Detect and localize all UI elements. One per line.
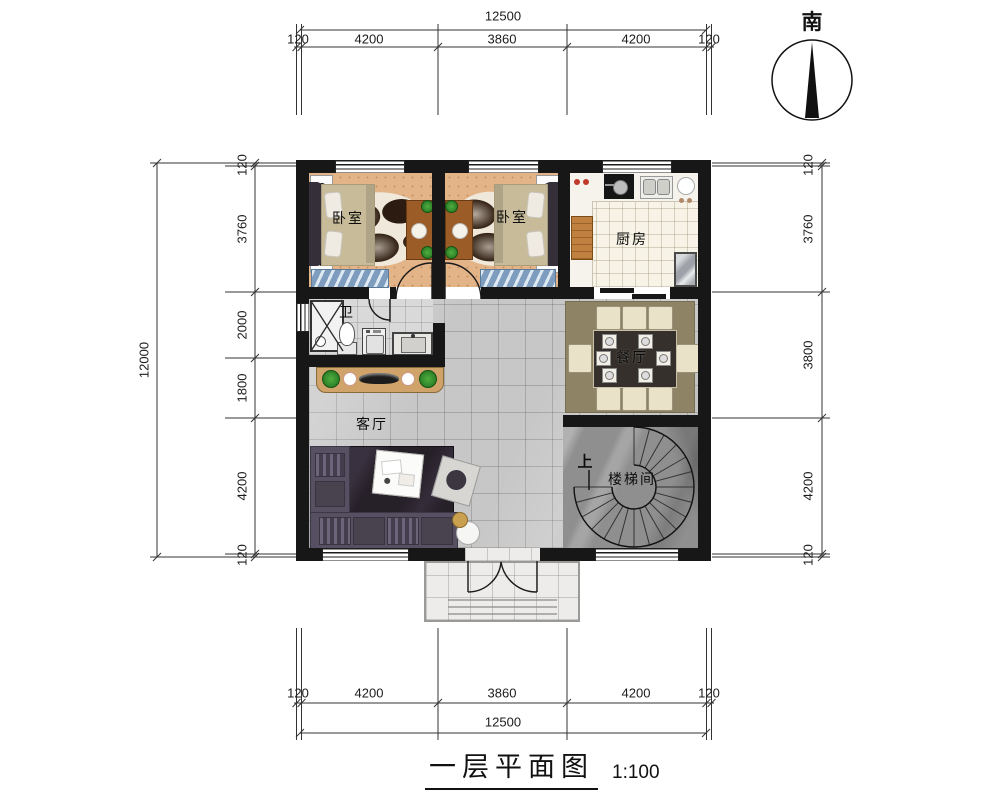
- place-setting-3: [602, 368, 617, 383]
- dim-bottom-seg2: 3860: [488, 686, 517, 701]
- wall-mid-seg2: [390, 287, 396, 299]
- console-plant-right: [419, 370, 437, 388]
- kettle-decor: [452, 512, 468, 528]
- dim-bottom-seg3: 4200: [622, 686, 651, 701]
- drawing-title: 一层平面图: [425, 745, 598, 790]
- kitchen-sink: [640, 176, 673, 199]
- coffee-table: [372, 450, 424, 499]
- kitchen-jar-dot2: [687, 198, 692, 203]
- wall-bath-bottom: [309, 355, 445, 367]
- wall-bath-right-stub: [433, 323, 445, 367]
- place-setting-5: [596, 351, 611, 366]
- dim-top-seg2: 3860: [488, 32, 517, 47]
- bedroom1-bed-headboard: [309, 182, 321, 266]
- console-tv: [359, 373, 399, 384]
- porch-floor: [424, 561, 580, 622]
- window-bedroom2: [468, 160, 539, 173]
- window-living-bottom: [322, 548, 409, 561]
- dim-right-seg0: 120: [801, 154, 816, 176]
- living-label: 客厅: [356, 414, 388, 434]
- dim-right-seg1: 3760: [801, 215, 816, 244]
- bath-label: 卫: [339, 302, 355, 322]
- window-kitchen: [602, 160, 672, 173]
- place-setting-6: [656, 351, 671, 366]
- dim-top-seg0: 120: [287, 32, 309, 47]
- window-stair-bottom: [595, 548, 679, 561]
- bedroom2-plant-top: [445, 200, 458, 213]
- drawing-title-block: 一层平面图 1:100: [425, 745, 660, 790]
- dining-label: 餐厅: [616, 347, 648, 367]
- window-bath-left: [296, 303, 309, 332]
- dim-top-seg3: 4200: [622, 32, 651, 47]
- stair-up-label: 上: [577, 451, 594, 472]
- dim-left-seg3: 1800: [235, 374, 250, 403]
- dining-chair-bottom-1: [596, 387, 621, 411]
- dim-left-seg4: 4200: [235, 472, 250, 501]
- console-bowl-right: [401, 372, 415, 386]
- dim-top-seg4: 120: [698, 32, 720, 47]
- dim-right-seg2: 3800: [801, 341, 816, 370]
- dim-right-seg4: 120: [801, 544, 816, 566]
- place-setting-4: [638, 368, 653, 383]
- bedroom1-mat: [311, 269, 389, 288]
- bath-washer: [362, 328, 386, 355]
- bedroom2-label: 卧室: [496, 207, 528, 227]
- dim-top-seg1: 4200: [355, 32, 384, 47]
- wall-bedrooms-divider: [432, 173, 445, 299]
- kitchen-wood-cabinet: [571, 216, 593, 260]
- dim-bottom-total: 12500: [485, 715, 521, 730]
- dining-chair-top-1: [596, 306, 621, 330]
- wall-dining-stair: [563, 415, 698, 427]
- wall-bedroom2-kitchen: [558, 173, 570, 299]
- dining-chair-right: [676, 344, 700, 373]
- dim-right-seg3: 4200: [801, 472, 816, 501]
- bedroom2-mat: [480, 269, 556, 288]
- entrance-opening: [465, 548, 540, 561]
- kitchen-burner-dot2: [583, 179, 589, 185]
- dim-left-seg5: 120: [235, 544, 250, 566]
- compass: [772, 40, 852, 120]
- dim-bottom-seg1: 4200: [355, 686, 384, 701]
- sofa-bottom-section: [310, 512, 458, 549]
- wall-right: [698, 160, 711, 561]
- bedroom2-plant-bottom: [445, 246, 458, 259]
- kitchen-stove: [604, 174, 634, 199]
- sofa-left-section: [310, 446, 350, 514]
- dim-top-total: 12500: [485, 9, 521, 24]
- stair-label: 楼梯间: [608, 469, 656, 489]
- dining-chair-top-3: [648, 306, 673, 330]
- dining-chair-top-2: [622, 306, 647, 330]
- dim-left-seg2: 2000: [235, 311, 250, 340]
- bath-toilet: [337, 322, 357, 355]
- bedroom1-label: 卧室: [332, 208, 364, 228]
- compass-circle: [772, 40, 852, 120]
- dim-bottom-seg4: 120: [698, 686, 720, 701]
- wall-mid-seg3: [481, 287, 594, 299]
- compass-south-label: 南: [802, 6, 823, 36]
- drawing-scale: 1:100: [612, 762, 660, 790]
- wall-left: [296, 160, 309, 561]
- dining-chair-left: [568, 344, 592, 373]
- dining-chair-bottom-3: [648, 387, 673, 411]
- dining-chair-bottom-2: [622, 387, 647, 411]
- console-bowl-left: [343, 372, 357, 386]
- kitchen-burner-dot1: [574, 179, 580, 185]
- window-bedroom1: [335, 160, 405, 173]
- kitchen-slider-bar1: [600, 288, 634, 293]
- wall-mid-seg1: [309, 287, 369, 299]
- kitchen-basin-round: [677, 177, 695, 195]
- kitchen-fridge: [674, 252, 697, 287]
- console-plant-left: [322, 370, 340, 388]
- wall-mid-seg4: [670, 287, 698, 299]
- bath-vanity: [392, 332, 433, 356]
- dim-left-total: 12000: [137, 342, 152, 378]
- dim-bottom-seg0: 120: [287, 686, 309, 701]
- compass-needle-icon: [805, 42, 819, 118]
- dim-left-seg0: 120: [235, 154, 250, 176]
- place-setting-1: [602, 334, 617, 349]
- kitchen-label: 厨房: [616, 229, 648, 249]
- kitchen-slider-bar2: [632, 294, 666, 299]
- dim-left-seg1: 3760: [235, 215, 250, 244]
- kitchen-jar-dot1: [679, 198, 684, 203]
- floorplan-page: { "title": {"main": "一层平面图", "scale": "1…: [0, 0, 1000, 800]
